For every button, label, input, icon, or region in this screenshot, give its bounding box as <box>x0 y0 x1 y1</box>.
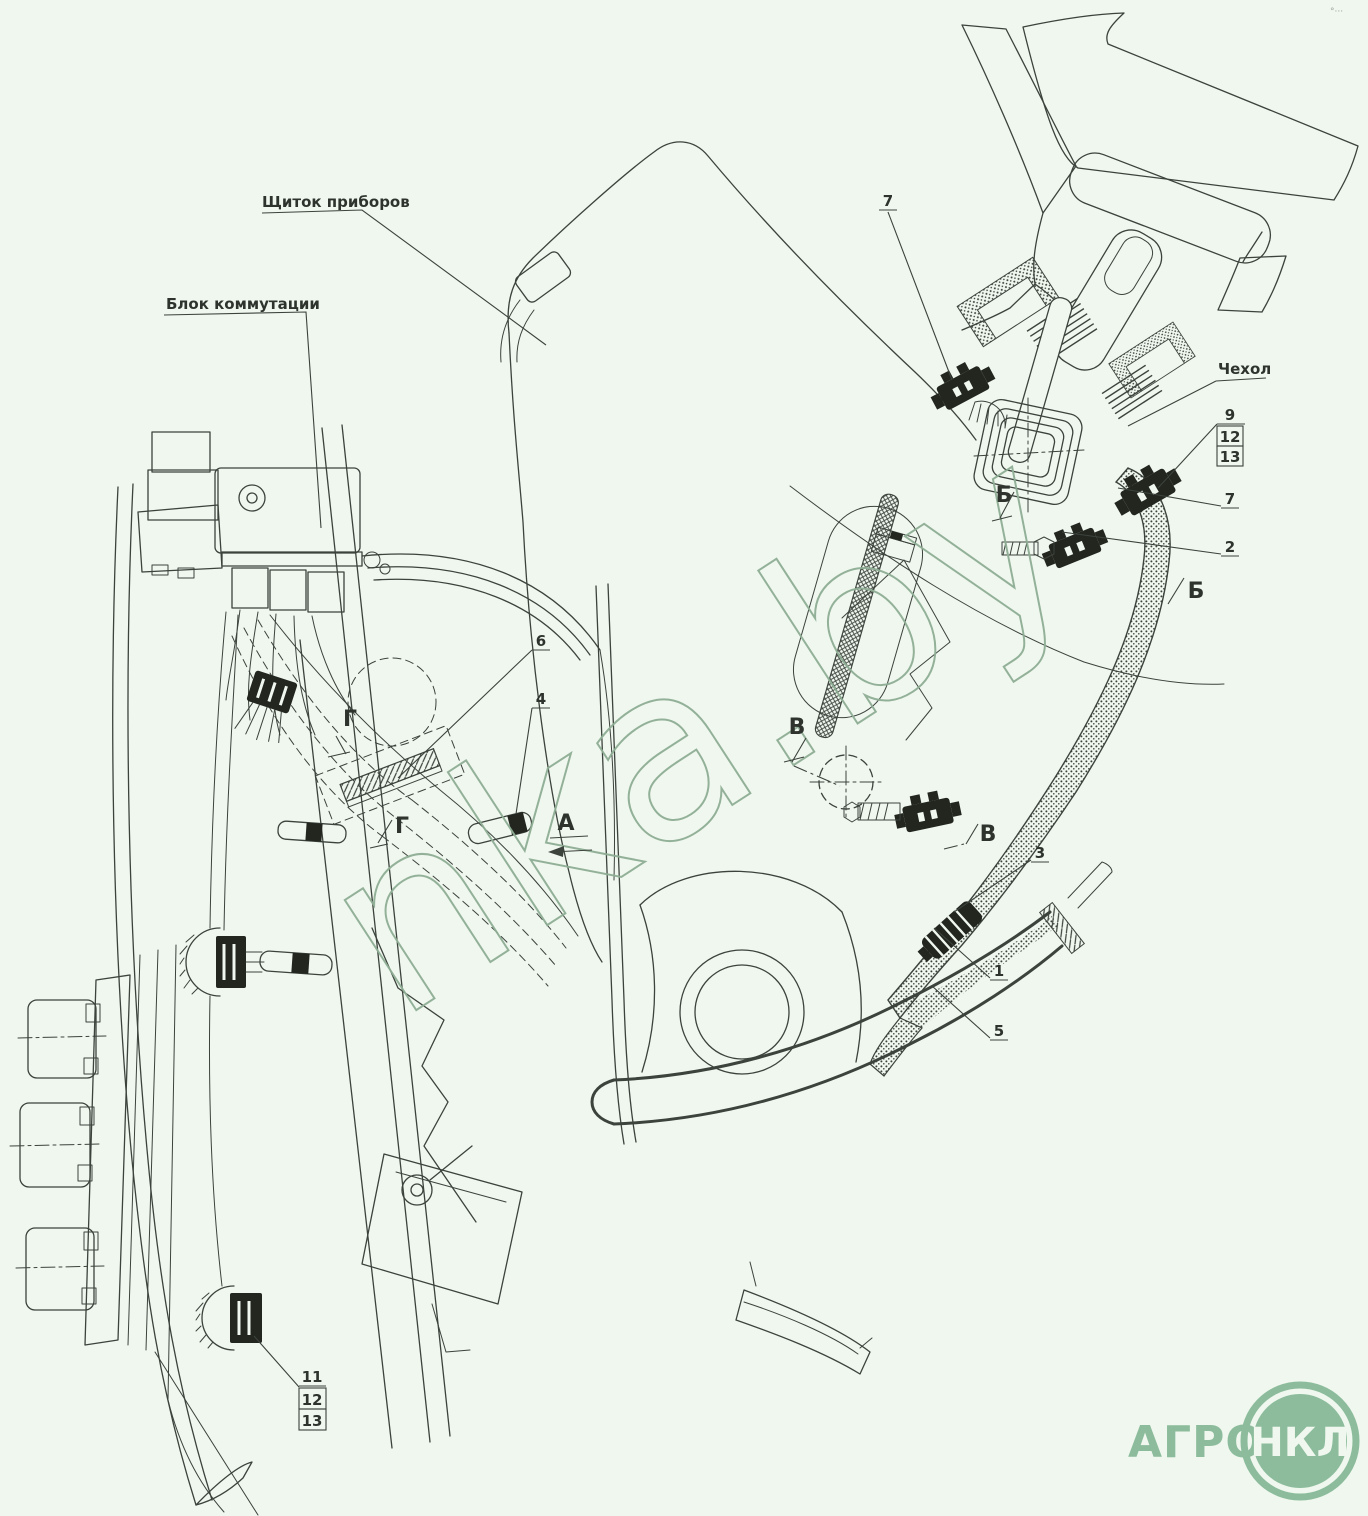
rect-connector <box>16 1228 104 1310</box>
callout-3: 3 <box>1035 844 1045 862</box>
callout-6: 6 <box>536 632 546 650</box>
callout-7-top: 7 <box>883 192 893 210</box>
logo-badge: НКЛ <box>1250 1420 1349 1466</box>
threaded-shank <box>844 802 900 822</box>
view-a: А <box>557 811 574 836</box>
callout-12-right: 12 <box>1220 428 1241 446</box>
round-connector-upper <box>180 928 264 996</box>
label-instrument-panel: Щиток приборов <box>262 193 410 211</box>
corner-marks: °··· <box>1330 7 1343 17</box>
callout-9: 9 <box>1225 406 1235 424</box>
view-v-upper: В <box>789 715 806 740</box>
callout-13-right: 13 <box>1220 448 1241 466</box>
callout-5: 5 <box>994 1022 1004 1040</box>
view-g-lower: Г <box>395 814 409 839</box>
agro-nkl-logo: АГРО НКЛ <box>1128 1385 1356 1497</box>
callout-2: 2 <box>1225 538 1235 556</box>
label-cover: Чехол <box>1218 360 1271 378</box>
round-connector-lower <box>196 1286 262 1350</box>
label-commutation-block: Блок коммутации <box>166 295 320 313</box>
callout-1: 1 <box>994 962 1004 980</box>
view-g-upper: Г <box>343 707 357 732</box>
view-v-lower: В <box>980 822 997 847</box>
rect-connector <box>10 1103 100 1187</box>
technical-diagram-page: nka.by Щиток приборов Блок коммутации Че… <box>0 0 1368 1516</box>
view-b-lower: Б <box>1188 579 1205 604</box>
callout-7-right: 7 <box>1225 490 1235 508</box>
callout-13-left: 13 <box>302 1412 323 1430</box>
callout-11: 11 <box>302 1368 323 1386</box>
cowl-panels <box>962 13 1358 330</box>
callout-4: 4 <box>536 690 546 708</box>
parts-diagram: nka.by Щиток приборов Блок коммутации Че… <box>0 0 1368 1516</box>
callout-12-left: 12 <box>302 1391 323 1409</box>
view-b-upper: Б <box>996 483 1013 508</box>
